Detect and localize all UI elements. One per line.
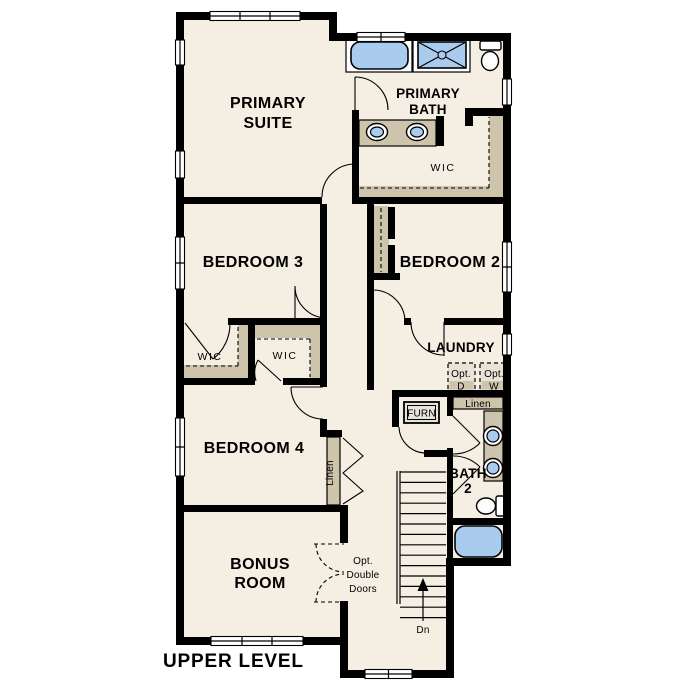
room-label-primary-bath: PRIMARY [396,86,460,101]
wall [444,318,511,325]
wall [320,204,327,325]
room-label-primary-suite: SUITE [243,115,292,132]
wall [447,448,453,560]
wall [392,390,399,427]
shower-drain-icon [438,51,446,59]
room-label-bedroom-3: BEDROOM 3 [203,254,304,271]
sink-basin [411,127,424,137]
wall [176,197,322,204]
closet-door-panel [388,207,395,239]
wic-bedroom4-shelf [255,325,320,338]
bathtub-icon [351,42,408,69]
furnace-label: FURN [407,409,436,420]
wic-bedroom4-shelf [310,338,320,378]
closet-door-panel [388,245,395,277]
opt-dryer-label: Opt. [451,369,471,380]
room-label-laundry: LAUNDRY [427,340,495,355]
room-label-bonus-room: BONUS [230,556,290,573]
toilet-icon [477,498,496,514]
wall [228,318,327,325]
plan-title: UPPER LEVEL [163,651,304,672]
linen-hall-label: Linen [325,460,336,485]
room-label-primary-suite: PRIMARY [230,95,306,112]
wall [446,558,511,566]
wall [329,33,511,41]
room-label-bath-2: BATH [449,466,487,481]
wic-primary-shelf [489,116,503,187]
wall [503,33,511,566]
wall [176,12,184,645]
wall [465,108,473,126]
floor-plan-drawing: PRIMARY SUITE PRIMARY BATH WIC BEDROOM 3… [0,0,687,687]
wic-bedroom3-shelf [238,325,248,378]
room-label-bedroom-2: BEDROOM 2 [400,254,501,271]
wall [248,318,255,385]
room-label-wic-primary: WIC [431,162,456,174]
stair-direction-label: Dn [416,625,429,636]
wall [340,505,348,543]
wall [176,505,348,512]
room-label-wic-bedroom4: WIC [273,350,298,362]
room-label-bath-2: 2 [464,481,472,496]
room-label-bedroom-4: BEDROOM 4 [204,440,305,457]
opt-double-doors-label: Double [347,570,380,581]
opt-double-doors-label: Opt. [353,556,373,567]
room-label-primary-bath: BATH [409,102,447,117]
room-label-bonus-room: ROOM [234,575,285,592]
wall [340,601,348,638]
wall [367,273,400,280]
linen-bath2-label: Linen [465,399,490,410]
opt-double-doors-label: Doors [349,584,377,595]
sink-basin [487,462,499,474]
floor-plan-canvas: PRIMARY SUITE PRIMARY BATH WIC BEDROOM 3… [0,0,687,687]
toilet-tank [480,41,501,50]
wall [446,558,454,678]
wall [320,430,342,437]
wall [436,116,444,146]
room-label-wic-bedroom3: WIC [198,351,223,363]
wall [447,390,453,416]
wall [392,390,453,397]
wall [355,197,511,204]
bathtub-icon [455,526,502,557]
sink-basin [371,127,384,137]
opt-dryer-label: D [457,382,464,393]
opt-washer-label: Opt. [484,369,504,380]
sink-basin [487,430,499,442]
wall [176,378,255,385]
wall [320,325,327,387]
wall [453,518,511,525]
toilet-icon [482,52,499,71]
wall [367,325,374,390]
opt-washer-label: W [489,382,499,393]
